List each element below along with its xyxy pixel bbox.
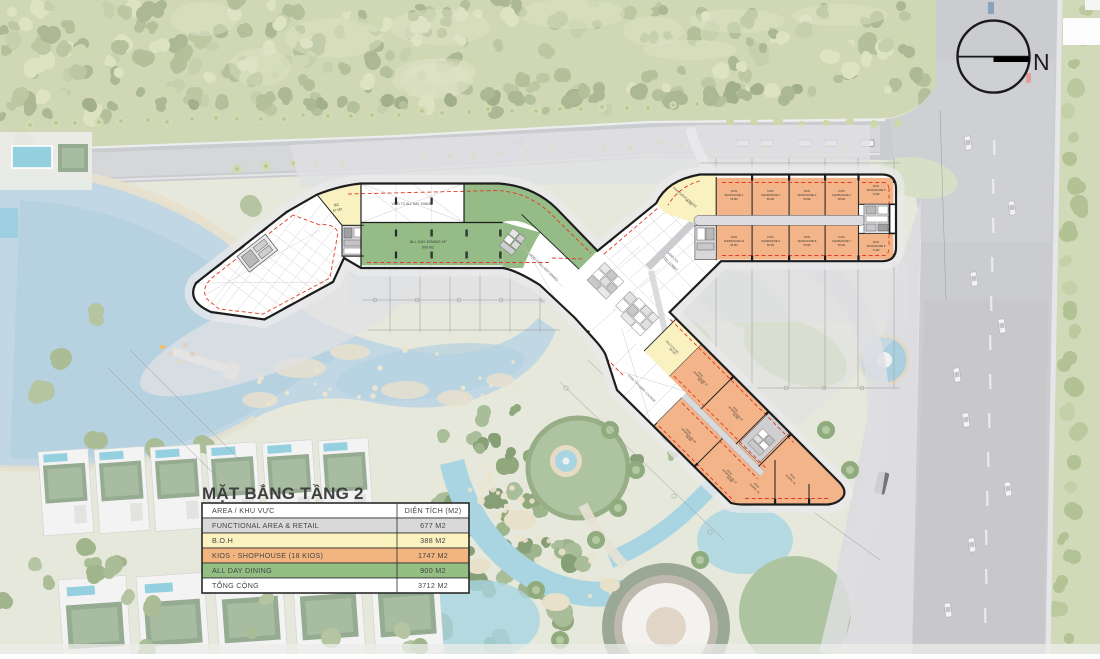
- svg-text:SHOPHOUSE 1: SHOPHOUSE 1: [725, 193, 744, 197]
- svg-text:SHOPHOUSE 6: SHOPHOUSE 6: [867, 244, 886, 248]
- svg-text:KIOS: KIOS: [767, 235, 773, 239]
- svg-text:56 M2: 56 M2: [730, 243, 738, 247]
- svg-text:ALL DAY DINING 1F: ALL DAY DINING 1F: [410, 239, 447, 244]
- svg-text:KIOS: KIOS: [731, 189, 737, 193]
- svg-text:KIOS: KIOS: [873, 184, 879, 188]
- svg-text:SHOPHOUSE 9: SHOPHOUSE 9: [761, 239, 780, 243]
- svg-text:FUNCTIONAL AREA & RETAIL: FUNCTIONAL AREA & RETAIL: [212, 521, 319, 530]
- svg-text:B.O.H: B.O.H: [212, 536, 233, 545]
- svg-text:677 M2: 677 M2: [420, 521, 446, 530]
- svg-text:VOID TO ALL DAY DINING: VOID TO ALL DAY DINING: [392, 202, 433, 206]
- svg-text:KIOS: KIOS: [838, 235, 844, 239]
- svg-text:1747 M2: 1747 M2: [418, 551, 448, 560]
- svg-text:KIOS: KIOS: [767, 189, 773, 193]
- svg-text:SHOPHOUSE 4: SHOPHOUSE 4: [832, 193, 851, 197]
- svg-text:MẶT BẲNG TẦNG 2: MẶT BẲNG TẦNG 2: [202, 484, 364, 503]
- svg-text:56 M2: 56 M2: [838, 197, 846, 201]
- svg-text:ALL DAY DINING: ALL DAY DINING: [212, 566, 272, 575]
- svg-text:56 M2: 56 M2: [730, 197, 738, 201]
- svg-text:900 M2: 900 M2: [420, 566, 446, 575]
- svg-text:3712 M2: 3712 M2: [418, 581, 448, 590]
- svg-text:N: N: [1033, 49, 1050, 75]
- svg-text:AREA / KHU VỰC: AREA / KHU VỰC: [212, 506, 275, 515]
- svg-text:900 M2: 900 M2: [422, 246, 434, 250]
- svg-text:56 M2: 56 M2: [767, 243, 775, 247]
- svg-text:KIOS: KIOS: [804, 235, 810, 239]
- svg-text:SHOPHOUSE 2: SHOPHOUSE 2: [761, 193, 780, 197]
- svg-text:SHOPHOUSE 5: SHOPHOUSE 5: [867, 188, 886, 192]
- svg-text:KIOS: KIOS: [731, 235, 737, 239]
- svg-text:72 M2: 72 M2: [872, 248, 880, 252]
- svg-text:KIOS: KIOS: [838, 189, 844, 193]
- svg-text:DIỆN TÍCH (M2): DIỆN TÍCH (M2): [405, 506, 462, 515]
- svg-text:72 M2: 72 M2: [872, 192, 880, 196]
- svg-text:SHOPHOUSE 8: SHOPHOUSE 8: [798, 239, 817, 243]
- svg-text:56 M2: 56 M2: [803, 197, 811, 201]
- svg-text:KIOS: KIOS: [873, 240, 879, 244]
- svg-text:SHOPHOUSE 10: SHOPHOUSE 10: [724, 239, 745, 243]
- svg-text:56 M2: 56 M2: [803, 243, 811, 247]
- svg-text:56 M2: 56 M2: [838, 243, 846, 247]
- svg-text:SHOPHOUSE 3: SHOPHOUSE 3: [798, 193, 817, 197]
- svg-text:388 M2: 388 M2: [420, 536, 446, 545]
- svg-text:TỔNG CỘNG: TỔNG CỘNG: [212, 581, 259, 590]
- svg-text:SHOPHOUSE 7: SHOPHOUSE 7: [832, 239, 851, 243]
- svg-text:56 M2: 56 M2: [767, 197, 775, 201]
- svg-text:KIOS: KIOS: [804, 189, 810, 193]
- svg-text:KIOS - SHOPHOUSE (18 KIOS): KIOS - SHOPHOUSE (18 KIOS): [212, 551, 323, 560]
